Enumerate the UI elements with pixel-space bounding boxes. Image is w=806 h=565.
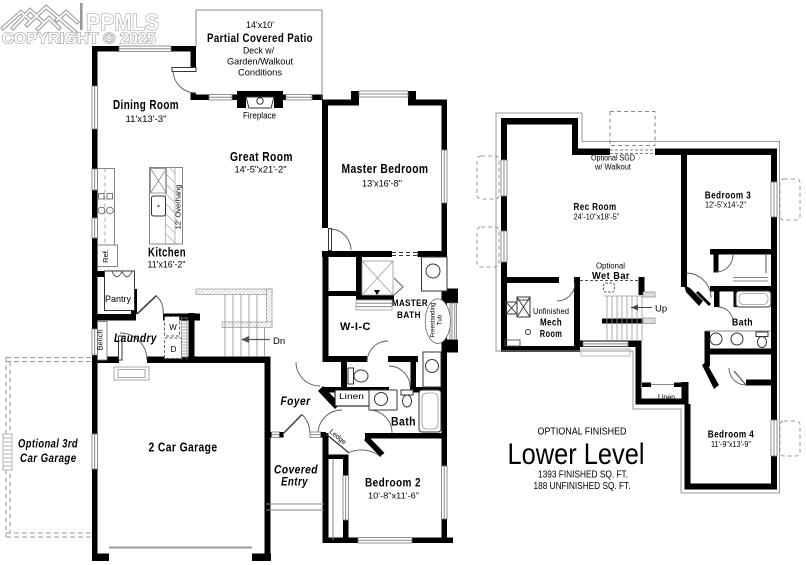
svg-text:Tub: Tub xyxy=(438,314,444,325)
svg-text:10'-8"x11'-6": 10'-8"x11'-6" xyxy=(368,492,419,501)
svg-text:11'-9"x13'-9": 11'-9"x13'-9" xyxy=(711,440,751,449)
svg-text:24'-10"x18'-5": 24'-10"x18'-5" xyxy=(574,213,620,222)
svg-text:Bath: Bath xyxy=(732,318,753,329)
svg-text:Rec Room: Rec Room xyxy=(574,202,617,213)
svg-text:Optional: Optional xyxy=(596,262,625,271)
svg-text:W: W xyxy=(169,323,177,332)
svg-text:BATH: BATH xyxy=(397,310,421,320)
svg-text:Car Garage: Car Garage xyxy=(20,451,77,465)
svg-text:2 Car Garage: 2 Car Garage xyxy=(149,441,218,455)
svg-text:Linen: Linen xyxy=(658,393,675,402)
svg-text:Linen: Linen xyxy=(339,391,364,401)
svg-text:11'x13'-3": 11'x13'-3" xyxy=(126,114,167,125)
svg-text:Laundry: Laundry xyxy=(114,331,158,345)
svg-text:Pantry: Pantry xyxy=(105,294,131,304)
svg-text:188 UNFINISHED SQ. FT.: 188 UNFINISHED SQ. FT. xyxy=(534,481,631,492)
svg-text:Up: Up xyxy=(655,304,667,315)
svg-text:w/ Walkout: w/ Walkout xyxy=(594,163,632,172)
svg-text:14'-5"x21'-2": 14'-5"x21'-2" xyxy=(235,165,287,176)
svg-text:Unfinished: Unfinished xyxy=(533,307,569,316)
svg-text:Freestanding: Freestanding xyxy=(431,302,437,337)
svg-text:Wet Bar: Wet Bar xyxy=(592,271,630,282)
svg-text:Room: Room xyxy=(540,329,563,340)
svg-text:Bench: Bench xyxy=(96,329,105,350)
svg-text:MASTER: MASTER xyxy=(392,298,428,308)
svg-text:Kitchen: Kitchen xyxy=(148,246,186,260)
svg-text:Ref.: Ref. xyxy=(101,249,110,263)
svg-text:Optional SGD: Optional SGD xyxy=(591,154,635,163)
svg-text:Optional 3rd: Optional 3rd xyxy=(18,437,78,451)
svg-text:Conditions: Conditions xyxy=(238,68,282,79)
svg-text:Bath: Bath xyxy=(391,415,416,429)
svg-text:COPYRIGHT © 2025: COPYRIGHT © 2025 xyxy=(2,31,156,48)
svg-text:12'-5"x14'-2": 12'-5"x14'-2" xyxy=(705,201,746,210)
svg-text:Great Room: Great Room xyxy=(230,150,293,164)
svg-text:Dining Room: Dining Room xyxy=(113,98,179,112)
svg-text:Lower Level: Lower Level xyxy=(508,438,645,471)
svg-text:W-I-C: W-I-C xyxy=(340,321,371,333)
svg-text:Fireplace: Fireplace xyxy=(243,111,276,121)
svg-text:11'x16'-2": 11'x16'-2" xyxy=(148,260,186,271)
svg-text:Entry: Entry xyxy=(281,475,309,489)
svg-text:Partial Covered Patio: Partial Covered Patio xyxy=(207,31,313,45)
svg-text:1393 FINISHED SQ. FT.: 1393 FINISHED SQ. FT. xyxy=(538,470,628,481)
svg-text:Bedroom 4: Bedroom 4 xyxy=(708,430,755,441)
svg-text:12' Overhang: 12' Overhang xyxy=(174,185,183,230)
svg-text:Foyer: Foyer xyxy=(281,394,312,408)
svg-text:Garden/Walkout: Garden/Walkout xyxy=(227,57,293,68)
svg-text:OPTIONAL FINISHED: OPTIONAL FINISHED xyxy=(538,426,627,438)
svg-text:Bedroom 2: Bedroom 2 xyxy=(365,476,421,490)
svg-text:14'x10': 14'x10' xyxy=(246,20,274,31)
svg-text:D: D xyxy=(171,345,177,354)
svg-text:Dn: Dn xyxy=(273,336,285,347)
svg-text:13'x16'-8": 13'x16'-8" xyxy=(362,179,402,190)
svg-text:Master Bedroom: Master Bedroom xyxy=(342,162,429,176)
svg-text:Deck w/: Deck w/ xyxy=(243,46,274,57)
svg-text:Mech: Mech xyxy=(540,318,562,329)
